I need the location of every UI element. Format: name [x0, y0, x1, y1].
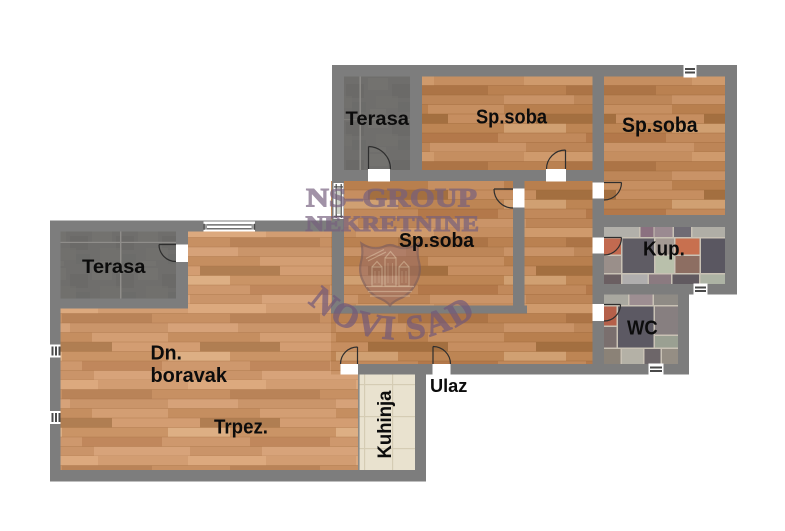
svg-text:Sp.soba: Sp.soba: [622, 114, 698, 137]
svg-text:Dn.: Dn.: [151, 342, 183, 365]
svg-text:Ulaz: Ulaz: [430, 375, 467, 396]
svg-text:Sp.soba: Sp.soba: [399, 229, 475, 252]
svg-text:Terasa: Terasa: [82, 256, 146, 278]
svg-text:Sp.soba: Sp.soba: [476, 106, 548, 129]
svg-text:WC: WC: [627, 318, 658, 340]
svg-text:Kuhinja: Kuhinja: [375, 390, 396, 458]
svg-text:Kup.: Kup.: [643, 238, 685, 261]
svg-text:Trpez.: Trpez.: [214, 416, 268, 439]
svg-text:boravak: boravak: [151, 364, 228, 387]
svg-text:Terasa: Terasa: [346, 108, 410, 130]
svg-text:NS–GROUP: NS–GROUP: [306, 184, 477, 213]
